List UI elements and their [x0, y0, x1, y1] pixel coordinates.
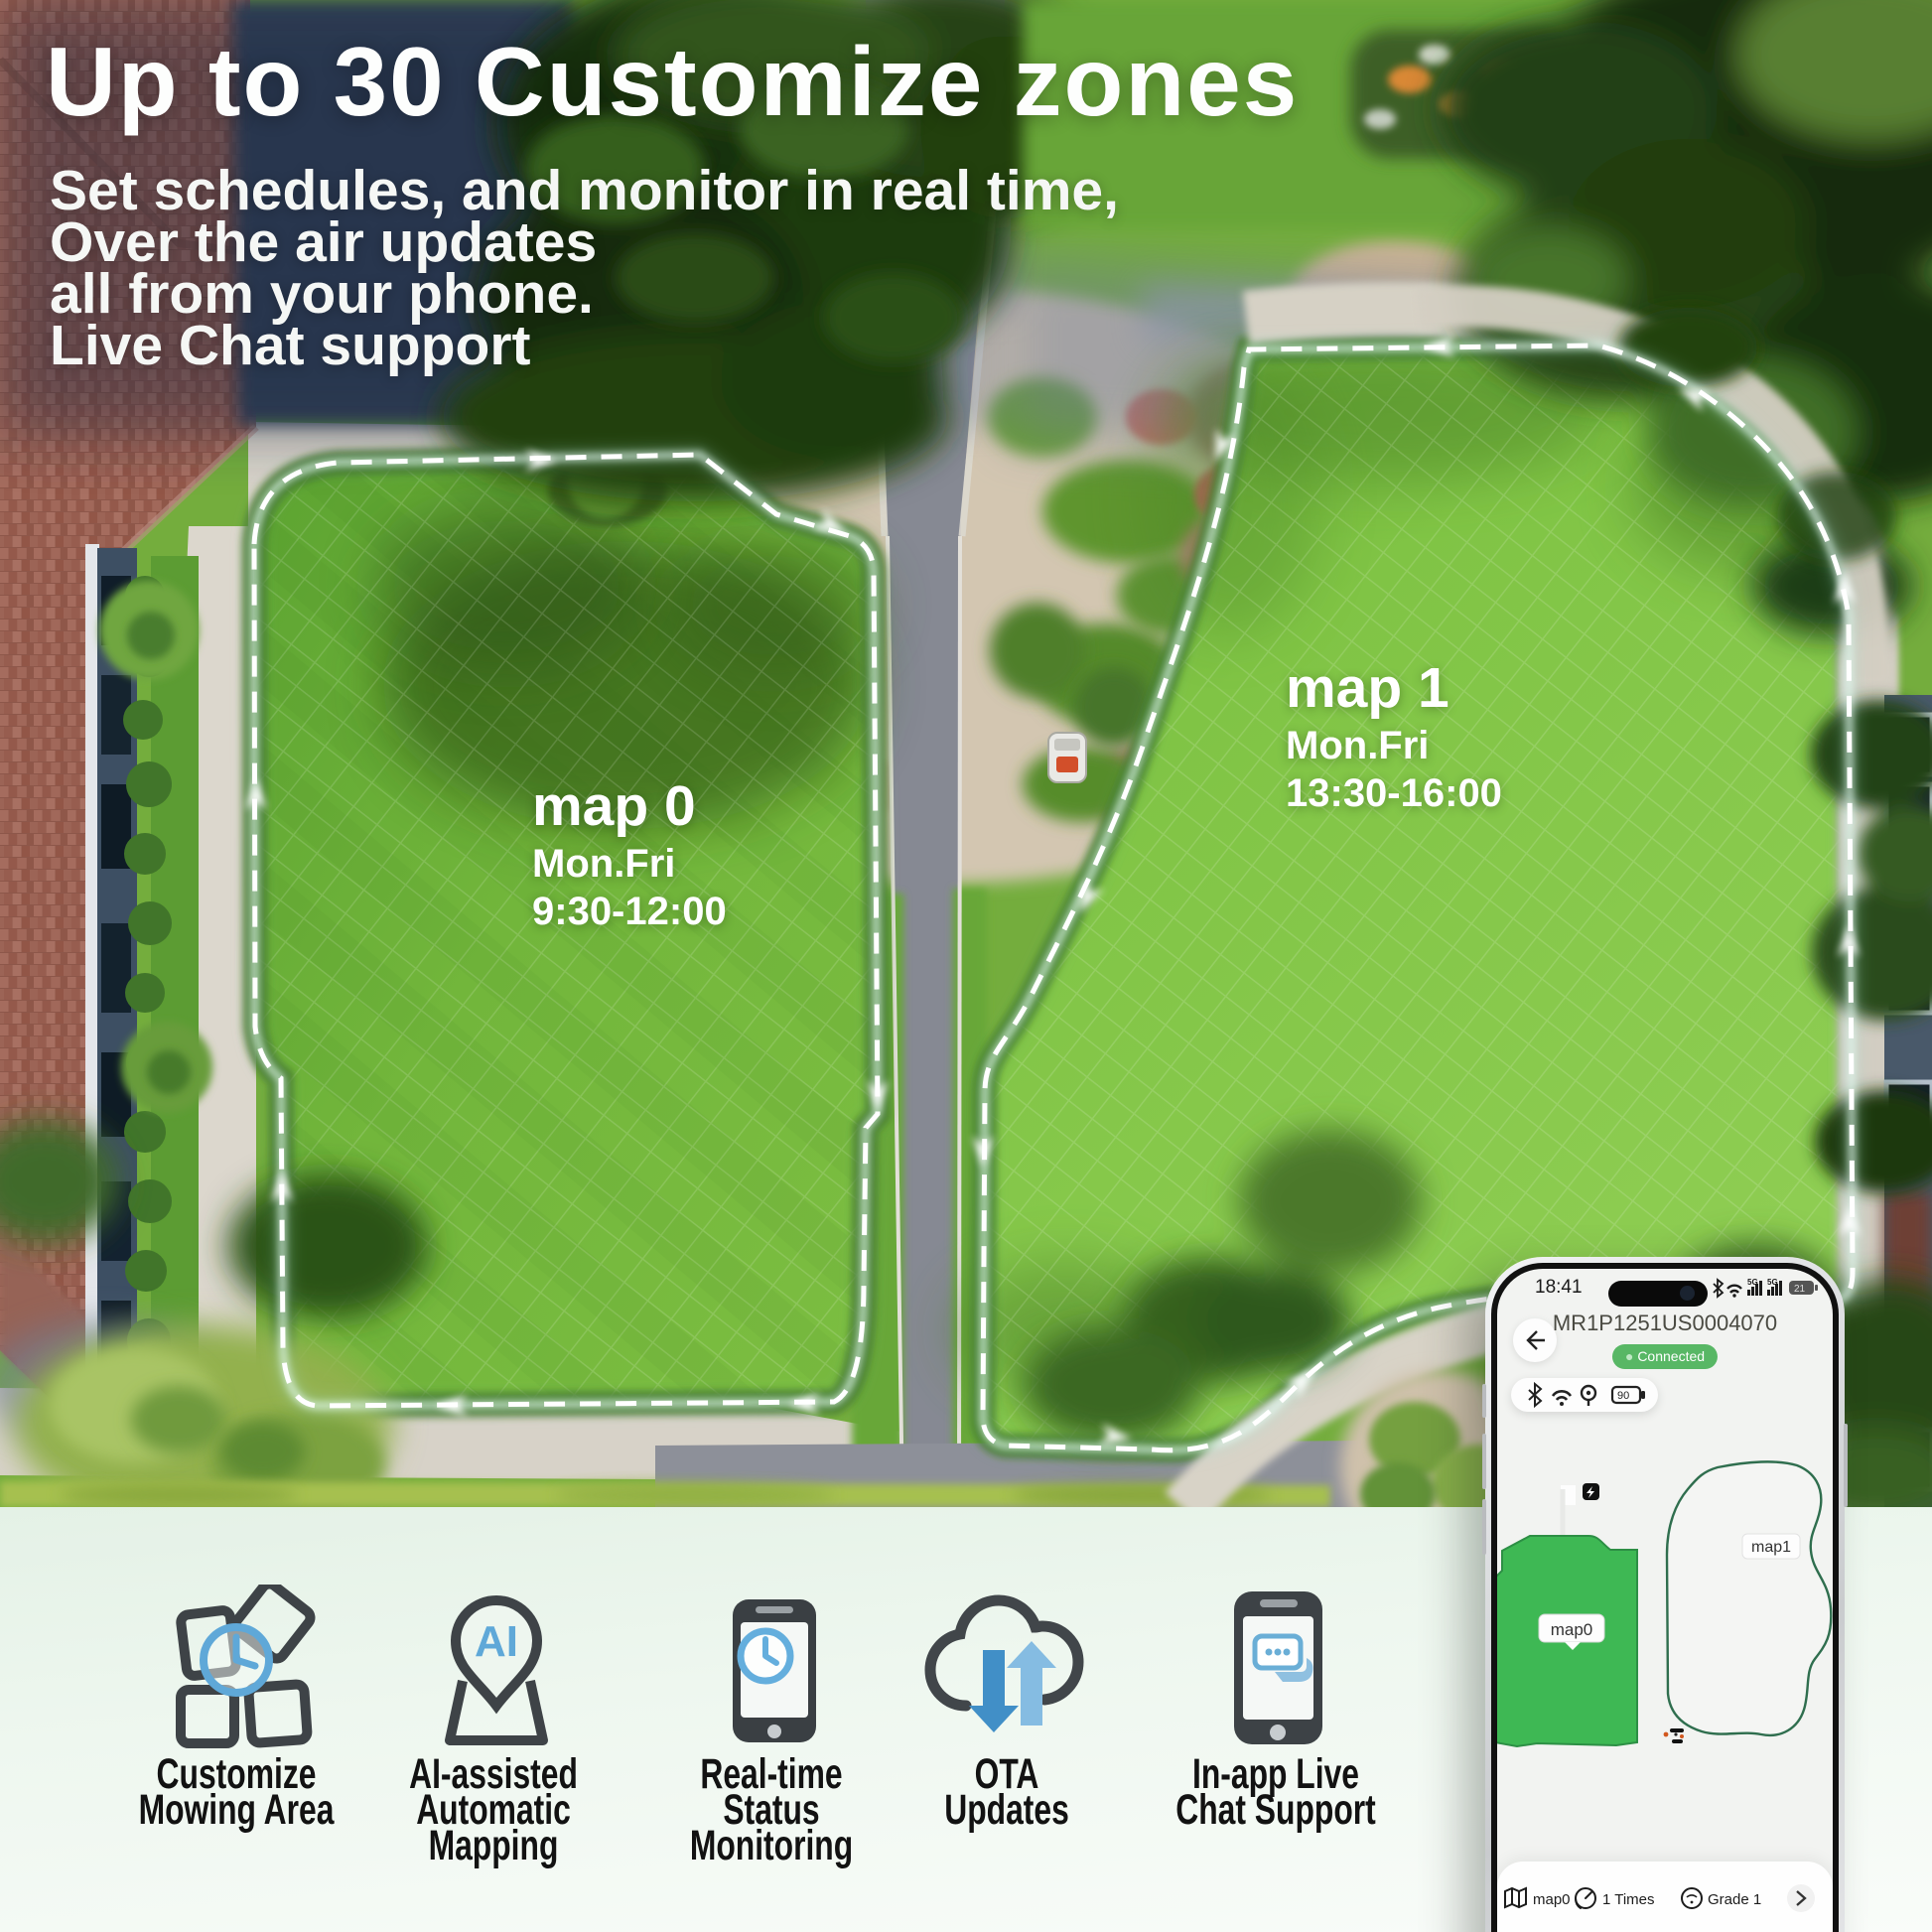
svg-text:map1: map1 [1751, 1539, 1791, 1556]
svg-text:AI: AI [475, 1617, 518, 1666]
svg-text:map0: map0 [1551, 1620, 1593, 1639]
svg-text:map0: map0 [1533, 1891, 1571, 1908]
svg-text:1 Times: 1 Times [1602, 1891, 1655, 1908]
svg-text:Grade 1: Grade 1 [1708, 1891, 1761, 1908]
